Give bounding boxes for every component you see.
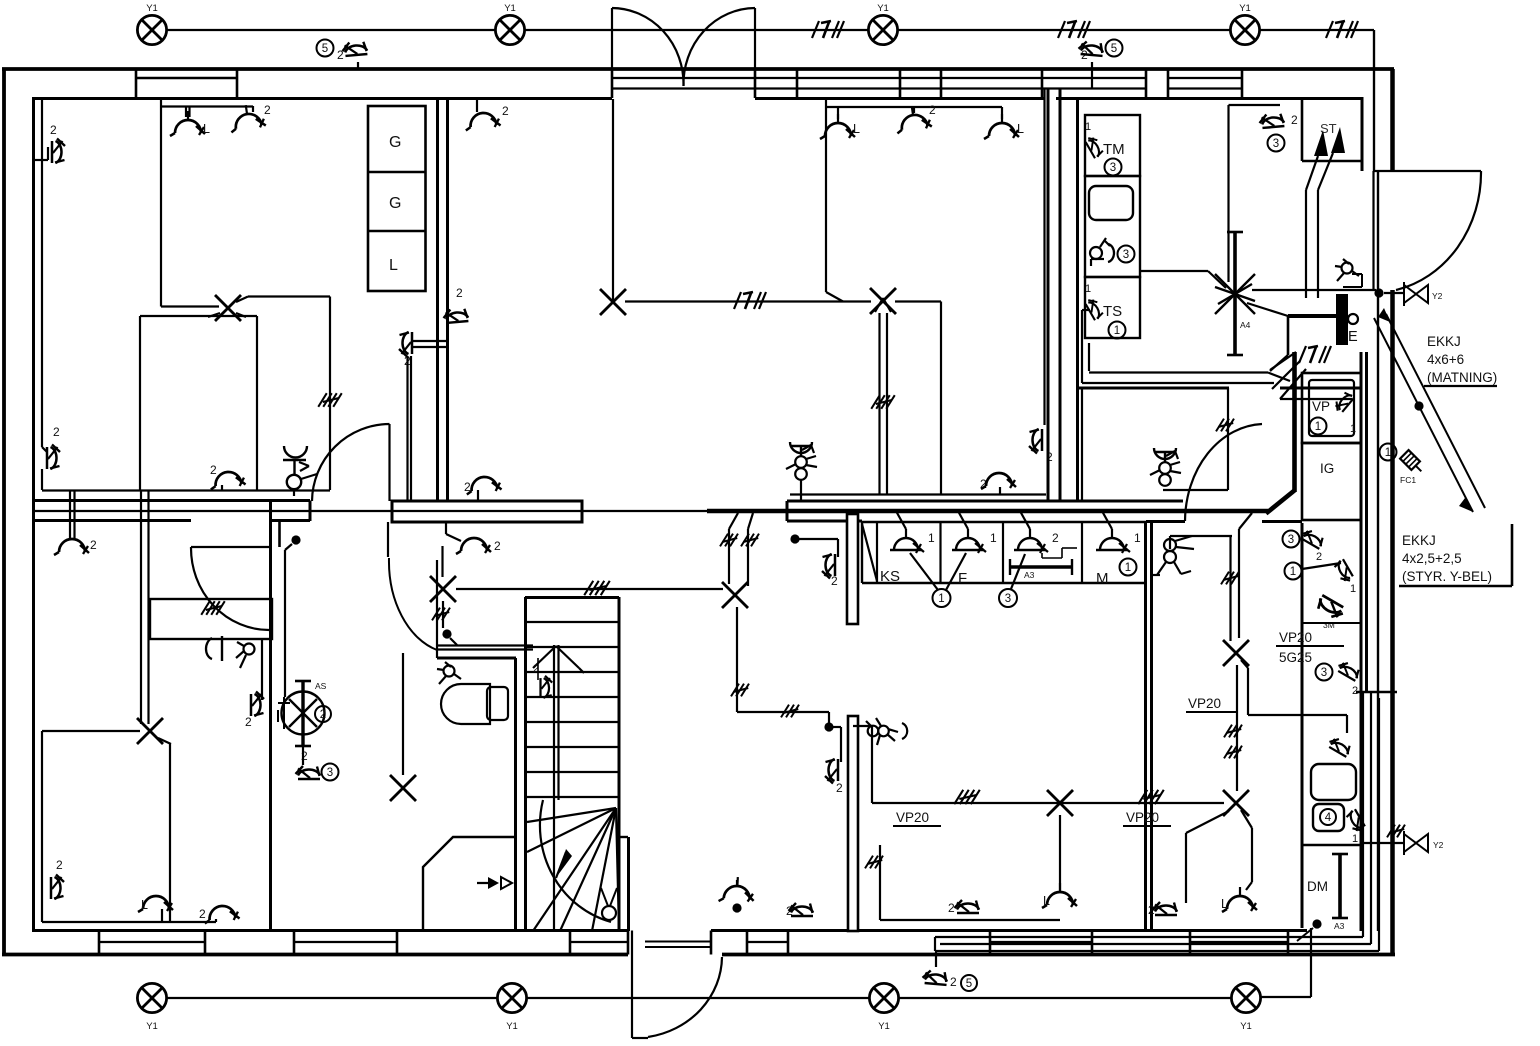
svg-text:TS: TS — [1103, 303, 1122, 320]
svg-text:(STYR. Y-BEL): (STYR. Y-BEL) — [1402, 569, 1492, 584]
svg-text:EKKJ: EKKJ — [1402, 533, 1436, 548]
svg-text:1: 1 — [928, 531, 935, 545]
svg-text:2: 2 — [245, 715, 252, 729]
svg-text:Y1: Y1 — [146, 1021, 158, 1032]
svg-text:2: 2 — [456, 286, 463, 300]
svg-text:2: 2 — [950, 975, 957, 989]
svg-text:1: 1 — [1315, 421, 1321, 433]
svg-text:2: 2 — [50, 123, 57, 137]
svg-text:2: 2 — [836, 781, 843, 795]
svg-text:Y2: Y2 — [1432, 291, 1443, 301]
svg-text:F: F — [958, 570, 967, 587]
svg-text:5: 5 — [322, 43, 328, 55]
svg-text:2: 2 — [1052, 531, 1059, 545]
svg-text:VP20: VP20 — [1126, 810, 1159, 825]
svg-text:3: 3 — [1288, 534, 1294, 546]
svg-text:M: M — [1096, 570, 1109, 587]
svg-text:L: L — [1017, 122, 1024, 136]
svg-text:L: L — [853, 122, 860, 136]
svg-text:1: 1 — [1352, 833, 1358, 845]
svg-text:E: E — [1348, 329, 1358, 345]
svg-text:2: 2 — [948, 901, 955, 915]
svg-text:Y1: Y1 — [506, 1021, 518, 1032]
svg-text:FC1: FC1 — [1400, 475, 1416, 485]
svg-text:A3: A3 — [1024, 570, 1035, 580]
svg-text:2: 2 — [1291, 113, 1298, 127]
svg-text:L: L — [389, 257, 398, 274]
svg-text:2: 2 — [502, 104, 509, 118]
svg-text:Y1: Y1 — [1240, 1021, 1252, 1032]
svg-text:1: 1 — [1085, 283, 1091, 295]
svg-text:L: L — [141, 898, 148, 912]
svg-text:1: 1 — [1350, 583, 1356, 595]
svg-text:1: 1 — [1290, 566, 1296, 578]
svg-text:2: 2 — [199, 907, 206, 921]
svg-text:G: G — [389, 134, 401, 151]
svg-text:2: 2 — [831, 574, 838, 588]
svg-text:L: L — [203, 122, 210, 136]
svg-text:EKKJ: EKKJ — [1427, 334, 1461, 349]
svg-text:5: 5 — [1111, 43, 1117, 55]
svg-text:2: 2 — [210, 463, 217, 477]
svg-text:G: G — [389, 195, 401, 212]
svg-text:2: 2 — [264, 103, 271, 117]
svg-text:1: 1 — [1114, 325, 1120, 337]
svg-text:IG: IG — [1320, 461, 1334, 476]
svg-text:2: 2 — [929, 103, 936, 117]
svg-text:1: 1 — [938, 593, 944, 605]
svg-text:4x6+6: 4x6+6 — [1427, 352, 1464, 367]
svg-text:5G25: 5G25 — [1279, 650, 1312, 665]
svg-text:1: 1 — [1134, 531, 1141, 545]
svg-text:Y1: Y1 — [878, 1021, 890, 1032]
svg-text:1: 1 — [990, 531, 997, 545]
svg-text:Y1: Y1 — [877, 3, 889, 14]
svg-text:2: 2 — [53, 425, 60, 439]
svg-text:DM: DM — [1307, 879, 1328, 894]
svg-text:Y1: Y1 — [1239, 3, 1251, 14]
svg-text:1: 1 — [1125, 562, 1131, 574]
svg-text:Y1: Y1 — [504, 3, 516, 14]
svg-text:AS: AS — [315, 681, 327, 691]
svg-text:3: 3 — [327, 767, 333, 779]
svg-text:5: 5 — [966, 978, 972, 990]
svg-text:2: 2 — [1352, 685, 1358, 697]
svg-text:L: L — [1043, 894, 1050, 908]
svg-text:VP20: VP20 — [896, 810, 929, 825]
svg-text:3: 3 — [1273, 138, 1279, 150]
svg-text:KS: KS — [880, 568, 900, 585]
svg-text:VP20: VP20 — [1279, 630, 1312, 645]
svg-text:2: 2 — [320, 709, 326, 721]
svg-text:VP20: VP20 — [1188, 696, 1221, 711]
svg-text:4: 4 — [1325, 812, 1332, 824]
svg-text:(MATNING): (MATNING) — [1427, 370, 1497, 385]
svg-text:A3: A3 — [1334, 921, 1345, 931]
svg-text:1: 1 — [1085, 121, 1091, 133]
svg-text:3: 3 — [1123, 249, 1129, 261]
svg-text:TM: TM — [1103, 141, 1125, 158]
svg-text:3: 3 — [1110, 162, 1116, 174]
svg-text:3M: 3M — [1323, 620, 1335, 630]
svg-text:1: 1 — [1350, 423, 1356, 435]
svg-text:VP: VP — [1312, 399, 1330, 414]
svg-text:2: 2 — [494, 539, 501, 553]
svg-text:2: 2 — [1316, 551, 1322, 563]
svg-text:Y2: Y2 — [1433, 840, 1444, 850]
svg-text:L: L — [1221, 897, 1228, 911]
svg-text:2: 2 — [56, 858, 63, 872]
svg-text:2: 2 — [90, 538, 97, 552]
svg-text:3: 3 — [1321, 667, 1327, 679]
svg-text:4x2,5+2,5: 4x2,5+2,5 — [1402, 551, 1462, 566]
svg-text:A4: A4 — [1240, 320, 1251, 330]
svg-text:1: 1 — [1385, 447, 1391, 459]
svg-text:3: 3 — [1005, 593, 1011, 605]
svg-text:Y1: Y1 — [146, 3, 158, 14]
